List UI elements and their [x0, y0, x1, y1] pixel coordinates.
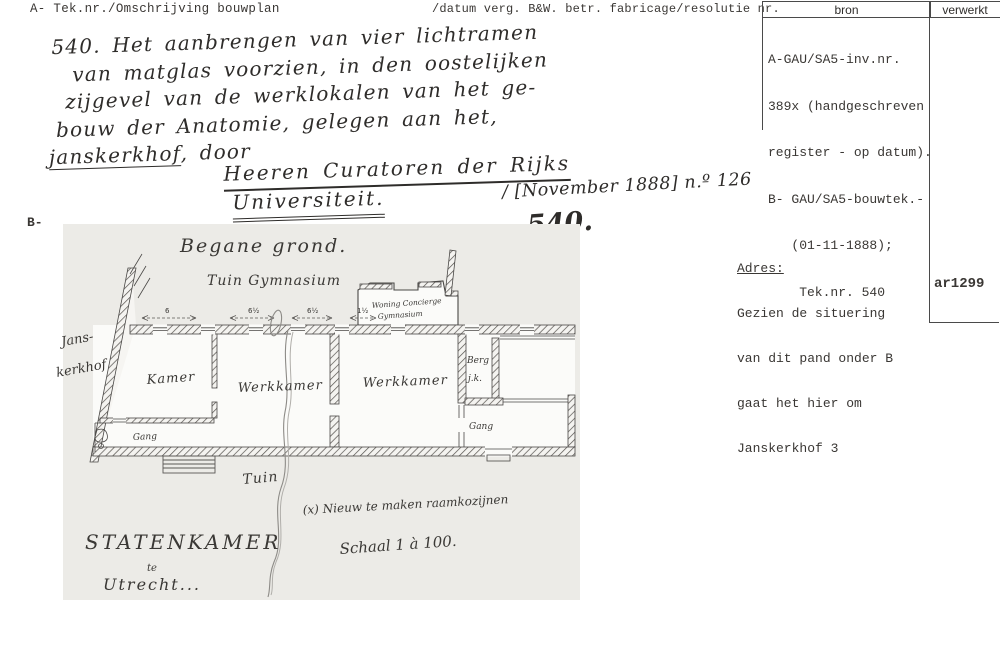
archive-reference-code: ar1299 [934, 276, 984, 292]
room-label-werkkamer-left: Werkkamer [238, 378, 323, 396]
cartouche-statenkamer: Statenkamer [85, 530, 281, 554]
garden-label: Tuin Gymnasium [207, 273, 341, 289]
bron-line: A-GAU/SA5-inv.nr. [768, 52, 932, 68]
floor-plan-drawing: 6 6½ 6½ 1½ Begane grond. Tuin Gymnasium … [35, 222, 590, 610]
room-label-jk: j.k. [466, 374, 482, 384]
verwerkt-label: verwerkt [942, 3, 987, 17]
bron-line: register - op datum). [768, 145, 932, 161]
column-header-datum: /datum verg. B&W. betr. fabricage/resolu… [432, 2, 780, 16]
bron-line: B- GAU/SA5-bouwtek.- [768, 192, 932, 208]
room-label-gang-right: Gang [469, 422, 493, 432]
adres-title: Adres: [737, 261, 893, 276]
dimension-value: 6 [165, 307, 170, 315]
annex-wall [419, 282, 441, 287]
room-label-werkkamer-right: Werkkamer [363, 373, 448, 391]
table-header-verwerkt: verwerkt [929, 1, 1000, 18]
bron-column-left-border [762, 17, 763, 130]
adres-annotation: Adres: Gezien de situering van dit pand … [737, 231, 893, 471]
underlined-word: janskerkhof [48, 141, 180, 170]
adres-line: gaat het hier om [737, 396, 893, 411]
handwritten-description: 540. Het aanbrengen van vier lichtramen … [37, 18, 583, 235]
room-label-berg: Berg [466, 356, 489, 366]
column-header-tekeningnummer: A- Tek.nr./Omschrijving bouwplan [30, 2, 280, 16]
archive-card-scan: { "header": { "col_left": "A- Tek.nr./Om… [0, 0, 1000, 665]
cartouche-utrecht: Utrecht... [103, 575, 201, 594]
signature-universiteit: Universiteit. [232, 185, 385, 222]
adres-line: Gezien de situering [737, 306, 893, 321]
adres-line: Janskerkhof 3 [737, 441, 893, 456]
cartouche-te: te [147, 563, 157, 574]
bron-line: 389x (handgeschreven [768, 99, 932, 115]
room-label-gang-left: Gang [133, 432, 158, 443]
verwerkt-column-bottom-border [929, 322, 999, 323]
table-header-bron: bron [762, 1, 931, 18]
bron-label: bron [834, 3, 858, 17]
dimension-value: 1½ [357, 307, 368, 315]
plan-title: Begane grond. [179, 235, 347, 257]
window-openings [153, 325, 534, 335]
dimension-value: 6½ [307, 307, 318, 315]
adres-line: van dit pand onder B [737, 351, 893, 366]
tuin-label: Tuin [242, 469, 279, 488]
dimension-value: 6½ [248, 307, 259, 315]
annex-wall [360, 284, 392, 289]
